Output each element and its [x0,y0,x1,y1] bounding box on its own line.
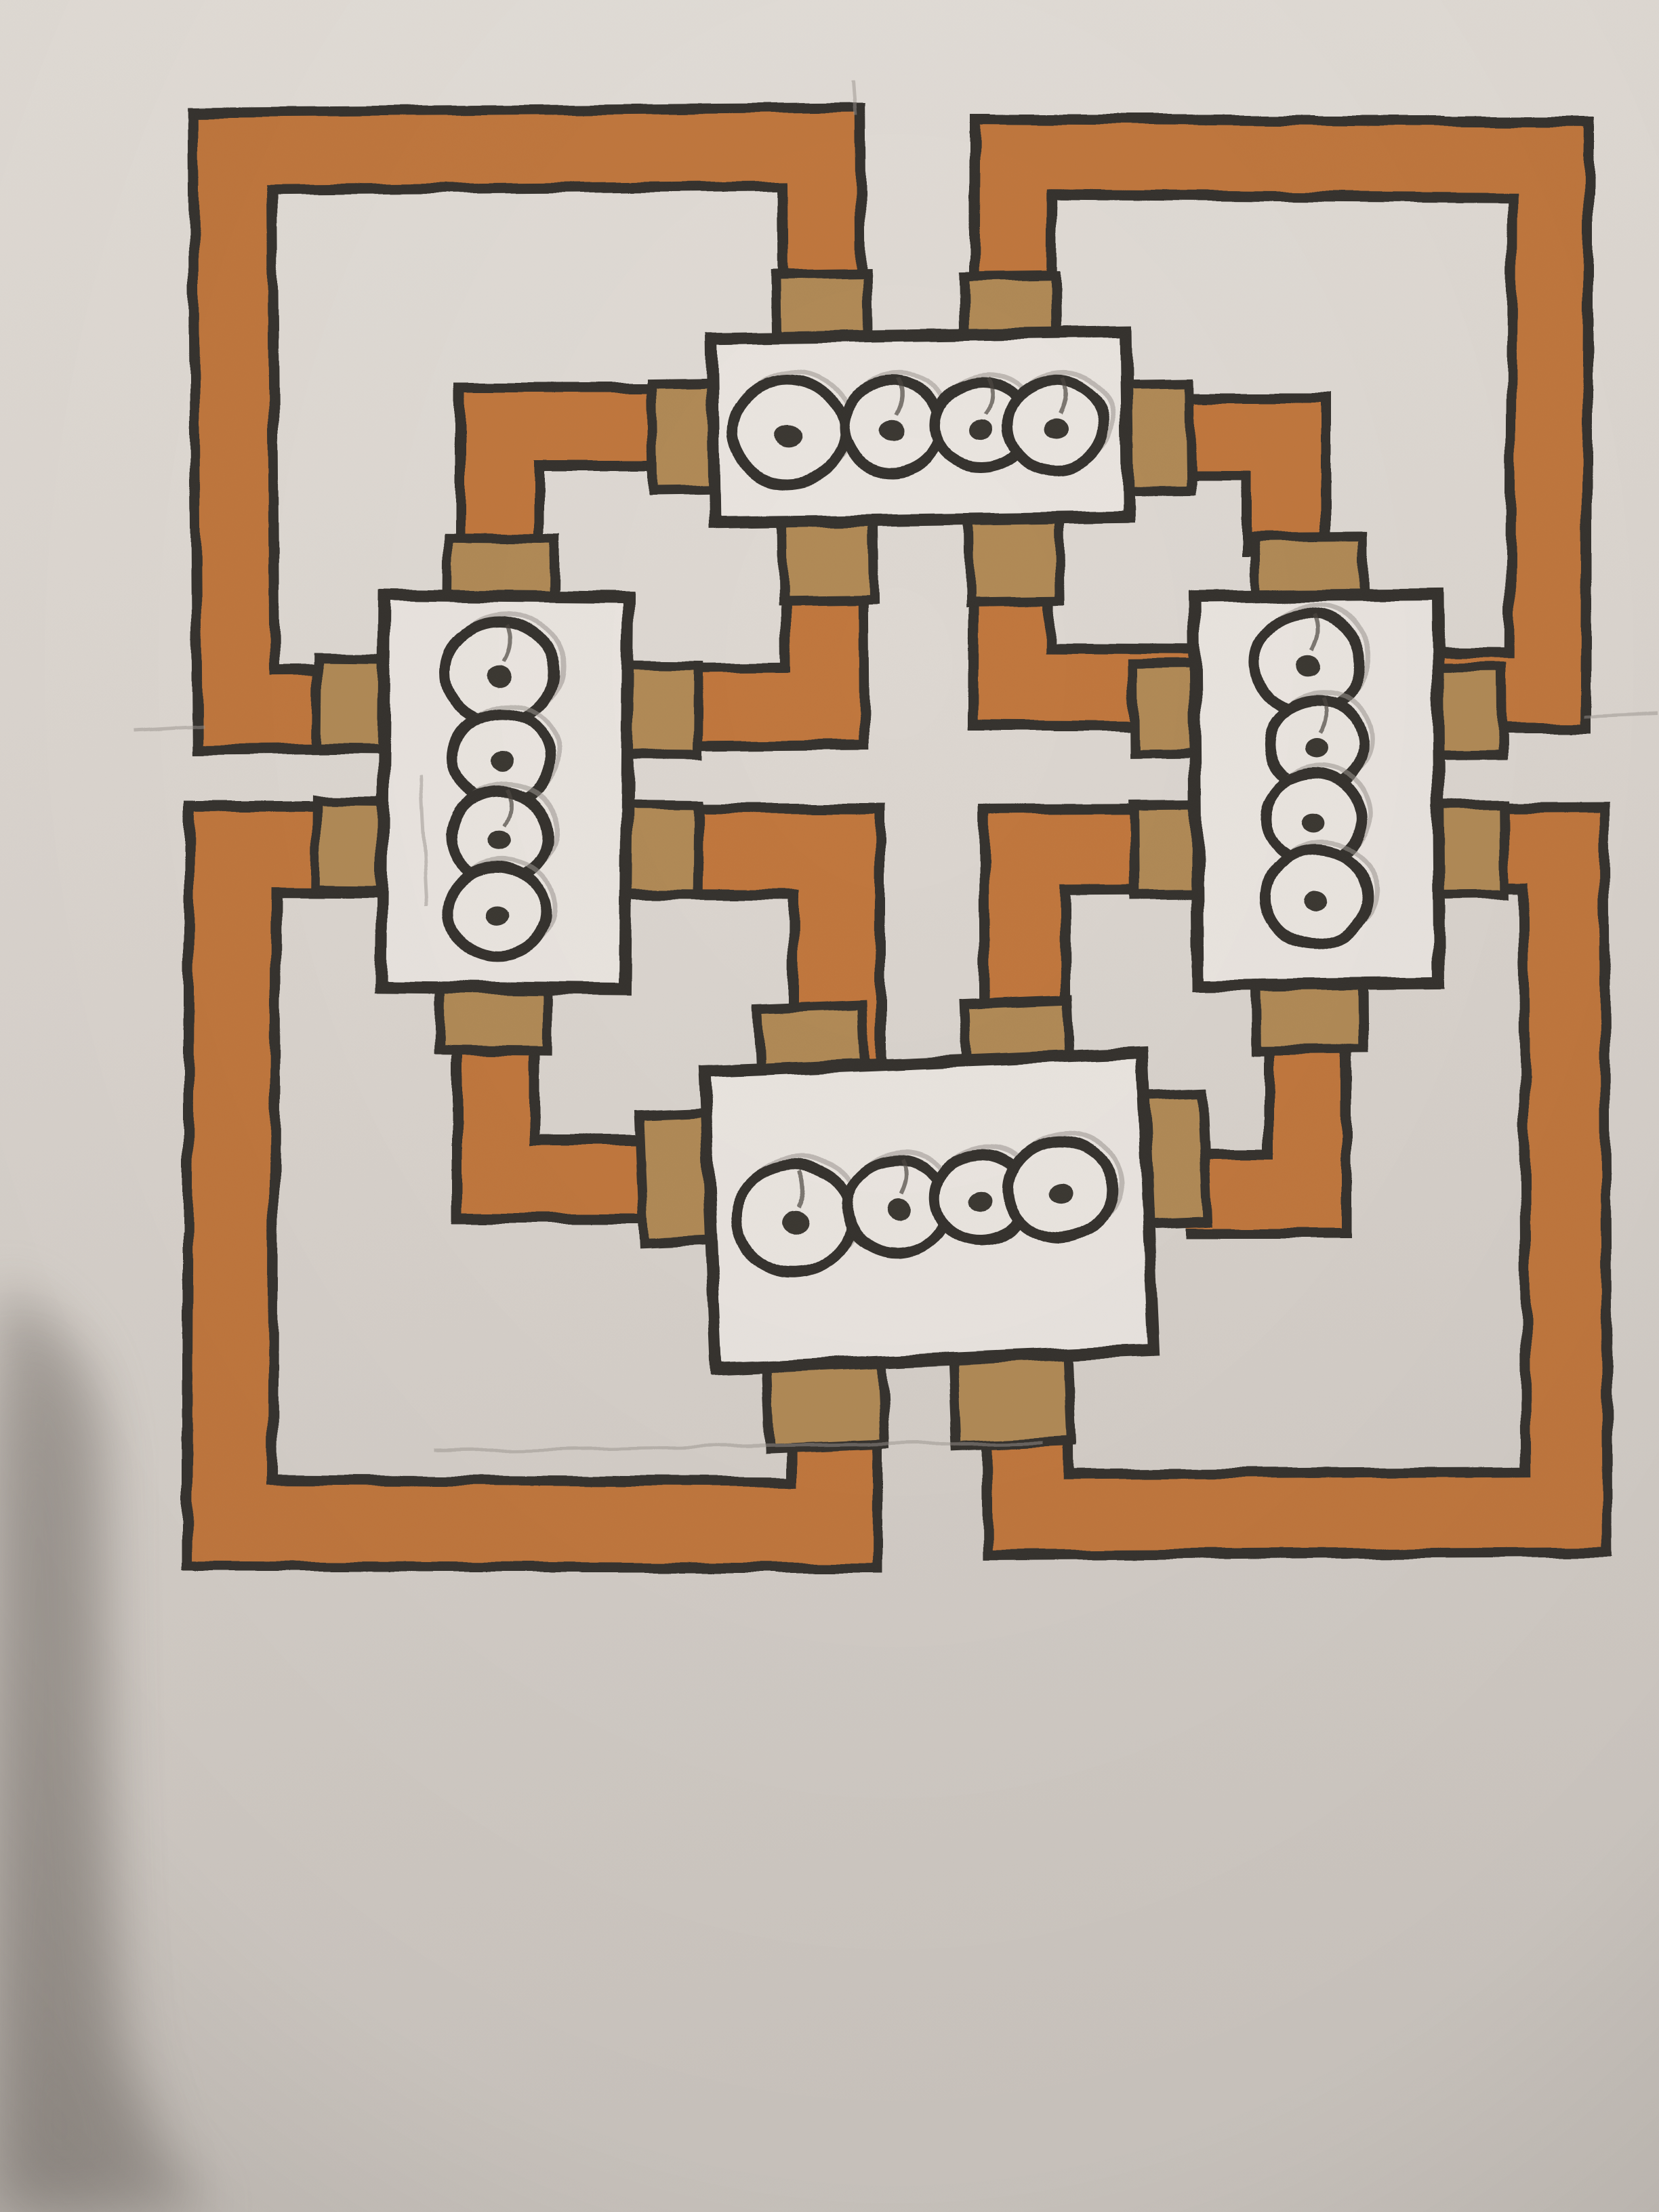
paper-grain-texture [0,0,1659,2212]
photo-of-hand-drawn-pattern [0,0,1659,2212]
photo-page [0,0,1659,2212]
